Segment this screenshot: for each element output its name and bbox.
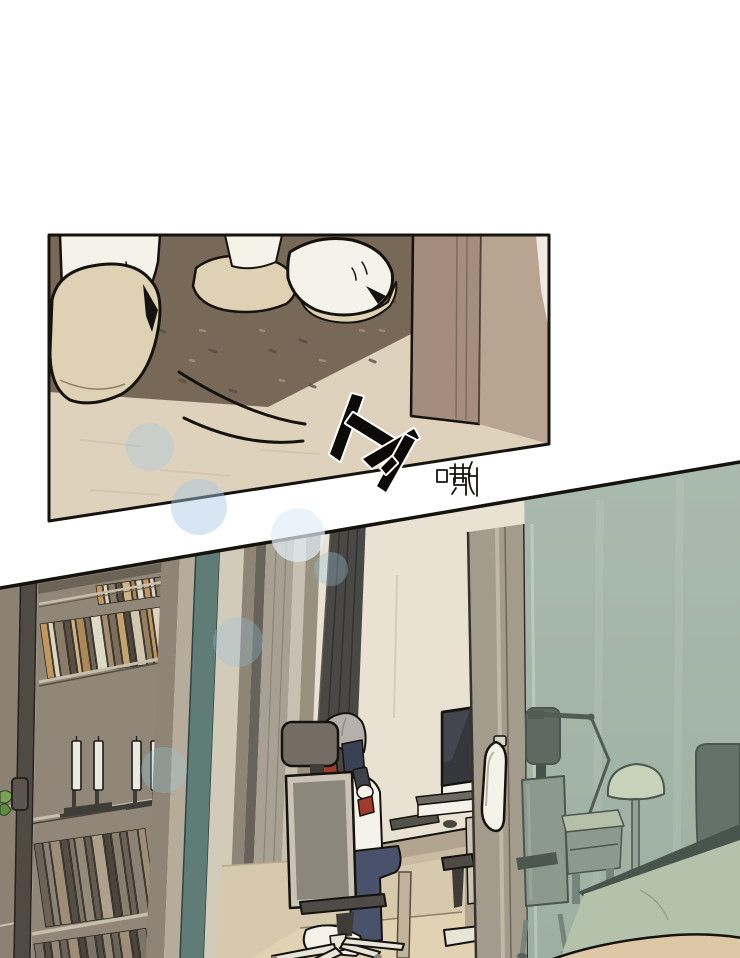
bokeh-circle — [141, 747, 187, 793]
chair2-armrest — [442, 854, 474, 870]
slipper-right-upper — [288, 239, 393, 316]
glass-door-right — [516, 424, 740, 958]
comic-artwork — [0, 0, 740, 958]
red-wristband — [358, 796, 374, 816]
bokeh-circle — [271, 508, 325, 562]
comic-page: トァ 嘶 — [0, 0, 740, 958]
glass-tint-over-bookshelf — [31, 500, 163, 958]
bokeh-circle — [213, 617, 263, 667]
sfx-hiss-glyph — [437, 462, 477, 496]
panel-entryway-slippers — [49, 235, 549, 521]
lamp-pole — [632, 799, 639, 871]
chair-back-panel — [293, 780, 349, 900]
chair2-arm-stem — [452, 868, 464, 908]
bokeh-circle — [126, 423, 174, 471]
bookshelf — [30, 500, 168, 958]
chair-headrest — [282, 722, 338, 766]
bokeh-circle — [314, 552, 348, 586]
door-frame-board — [411, 235, 481, 424]
nightstand-leg — [572, 874, 580, 904]
glass-door-center-frame — [468, 524, 528, 958]
lamp-arm-top — [532, 714, 590, 717]
door-face — [479, 235, 549, 444]
mouse — [443, 820, 457, 828]
door-handle — [482, 742, 506, 831]
bokeh-circle — [171, 479, 227, 535]
left-door-handle — [12, 778, 28, 810]
slipper-center-upper — [225, 235, 282, 268]
